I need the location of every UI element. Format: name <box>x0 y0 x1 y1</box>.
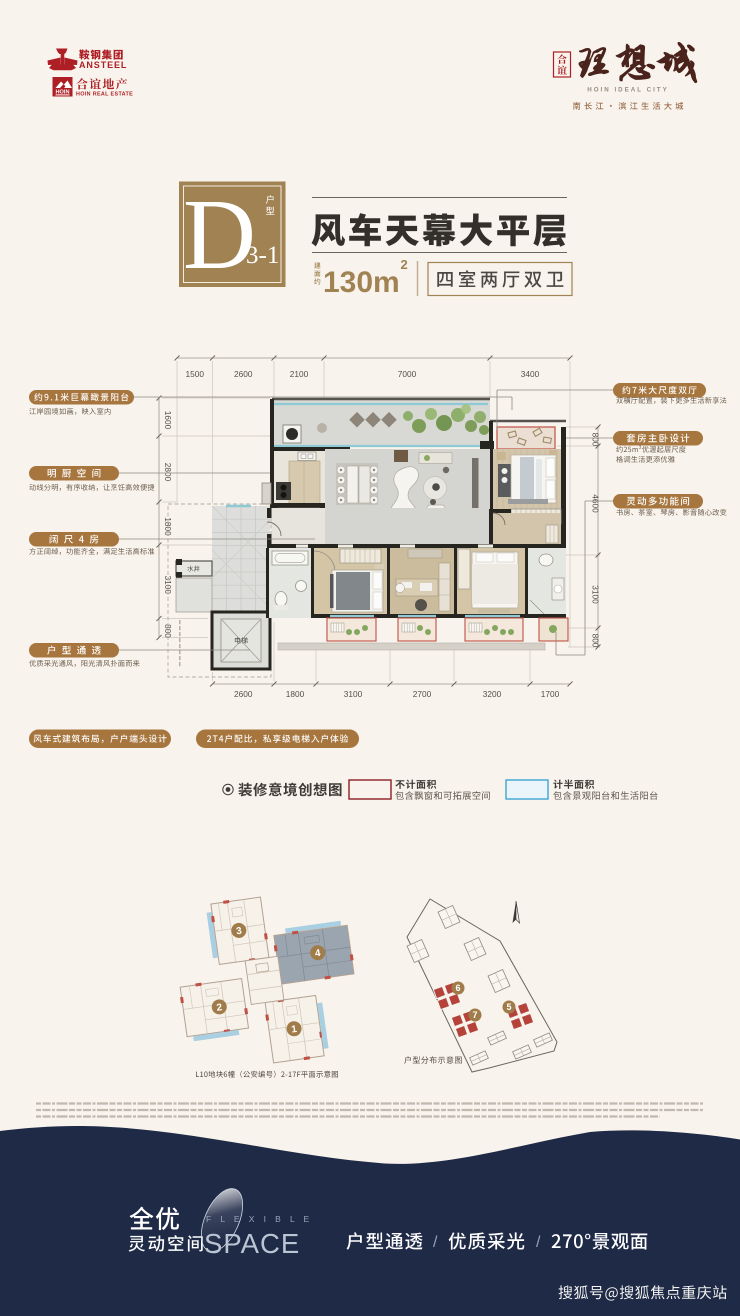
svg-text:1800: 1800 <box>286 689 305 699</box>
svg-text:4600: 4600 <box>591 494 601 513</box>
svg-text:800: 800 <box>591 433 601 447</box>
svg-text:2700: 2700 <box>413 689 432 699</box>
svg-text:1600: 1600 <box>163 411 173 430</box>
svg-text:HOIN REAL ESTATE: HOIN REAL ESTATE <box>76 92 133 98</box>
svg-text:/: / <box>433 1234 438 1251</box>
svg-text:3-1: 3-1 <box>246 242 279 269</box>
svg-text:/: / <box>536 1234 541 1251</box>
svg-text:130m: 130m <box>323 266 400 299</box>
svg-text:3200: 3200 <box>483 689 502 699</box>
svg-text:SPACE: SPACE <box>204 1228 300 1259</box>
svg-text:800: 800 <box>591 634 601 648</box>
svg-text:2100: 2100 <box>290 369 309 379</box>
svg-text:7000: 7000 <box>398 369 417 379</box>
svg-text:D: D <box>183 178 256 290</box>
svg-text:HOIN IDEAL CITY: HOIN IDEAL CITY <box>587 87 668 94</box>
svg-text:3100: 3100 <box>344 689 363 699</box>
svg-text:2600: 2600 <box>234 689 253 699</box>
svg-text:ANSTEEL: ANSTEEL <box>79 60 127 70</box>
svg-text:2: 2 <box>401 257 408 272</box>
svg-text:6: 6 <box>455 983 460 993</box>
svg-text:2800: 2800 <box>163 463 173 482</box>
svg-text:3400: 3400 <box>521 369 540 379</box>
svg-text:F L E X I B L E: F L E X I B L E <box>206 1214 313 1224</box>
svg-text:3100: 3100 <box>591 585 601 604</box>
svg-text:5: 5 <box>506 1002 511 1012</box>
svg-text:2600: 2600 <box>234 369 253 379</box>
svg-text:1500: 1500 <box>186 369 205 379</box>
svg-text:1700: 1700 <box>541 689 560 699</box>
svg-text:7: 7 <box>472 1010 477 1020</box>
